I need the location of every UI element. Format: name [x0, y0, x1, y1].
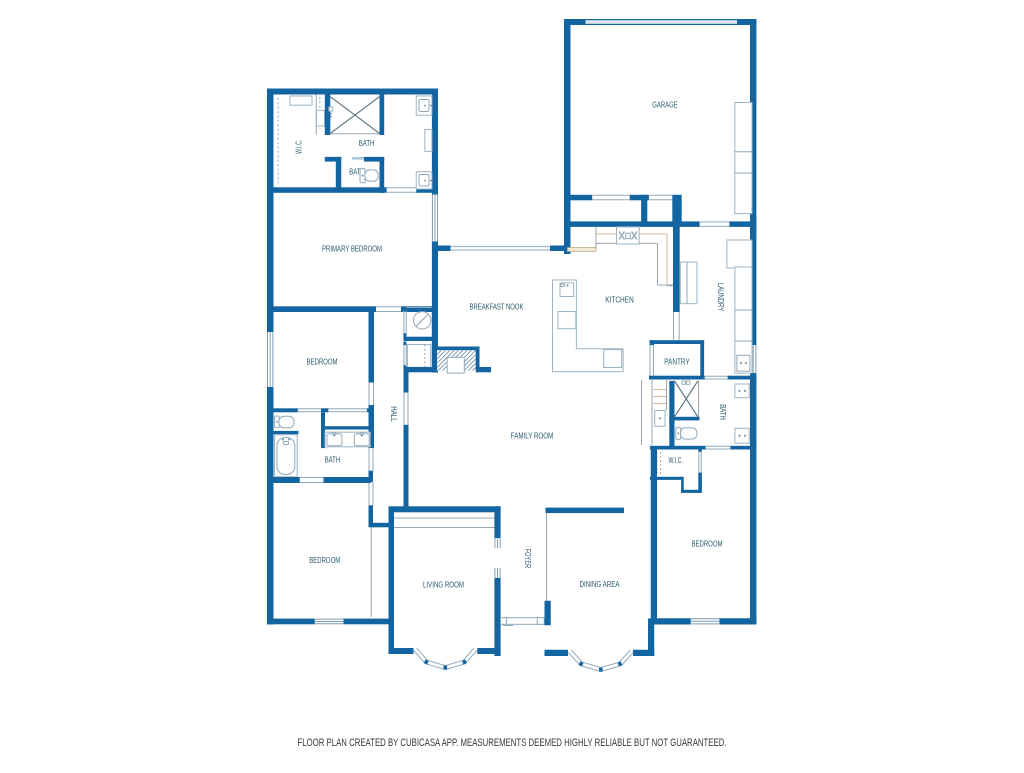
- svg-text:KITCHEN: KITCHEN: [605, 295, 634, 304]
- svg-text:W.I.C.: W.I.C.: [295, 140, 304, 155]
- svg-text:BATH: BATH: [325, 455, 341, 464]
- svg-text:FLOOR PLAN CREATED BY CUBICASA: FLOOR PLAN CREATED BY CUBICASA APP. MEAS…: [298, 737, 727, 749]
- svg-text:FOYER: FOYER: [523, 549, 532, 569]
- svg-text:HALL: HALL: [389, 406, 398, 422]
- svg-text:W.I.C.: W.I.C.: [669, 456, 684, 465]
- svg-text:BEDROOM: BEDROOM: [309, 556, 340, 565]
- svg-text:PANTRY: PANTRY: [664, 358, 690, 367]
- svg-text:GARAGE: GARAGE: [652, 101, 678, 110]
- svg-text:BREAKFAST NOOK: BREAKFAST NOOK: [470, 302, 524, 311]
- svg-text:DINING AREA: DINING AREA: [580, 580, 621, 589]
- svg-text:BEDROOM: BEDROOM: [692, 539, 723, 548]
- svg-text:BEDROOM: BEDROOM: [307, 358, 338, 367]
- svg-text:BATH: BATH: [359, 139, 375, 148]
- svg-text:LIVING ROOM: LIVING ROOM: [423, 580, 464, 589]
- svg-text:BATH: BATH: [718, 404, 727, 420]
- svg-text:LAUNDRY: LAUNDRY: [716, 283, 725, 312]
- svg-text:FAMILY ROOM: FAMILY ROOM: [511, 431, 554, 440]
- svg-text:PRIMARY BEDROOM: PRIMARY BEDROOM: [322, 245, 382, 254]
